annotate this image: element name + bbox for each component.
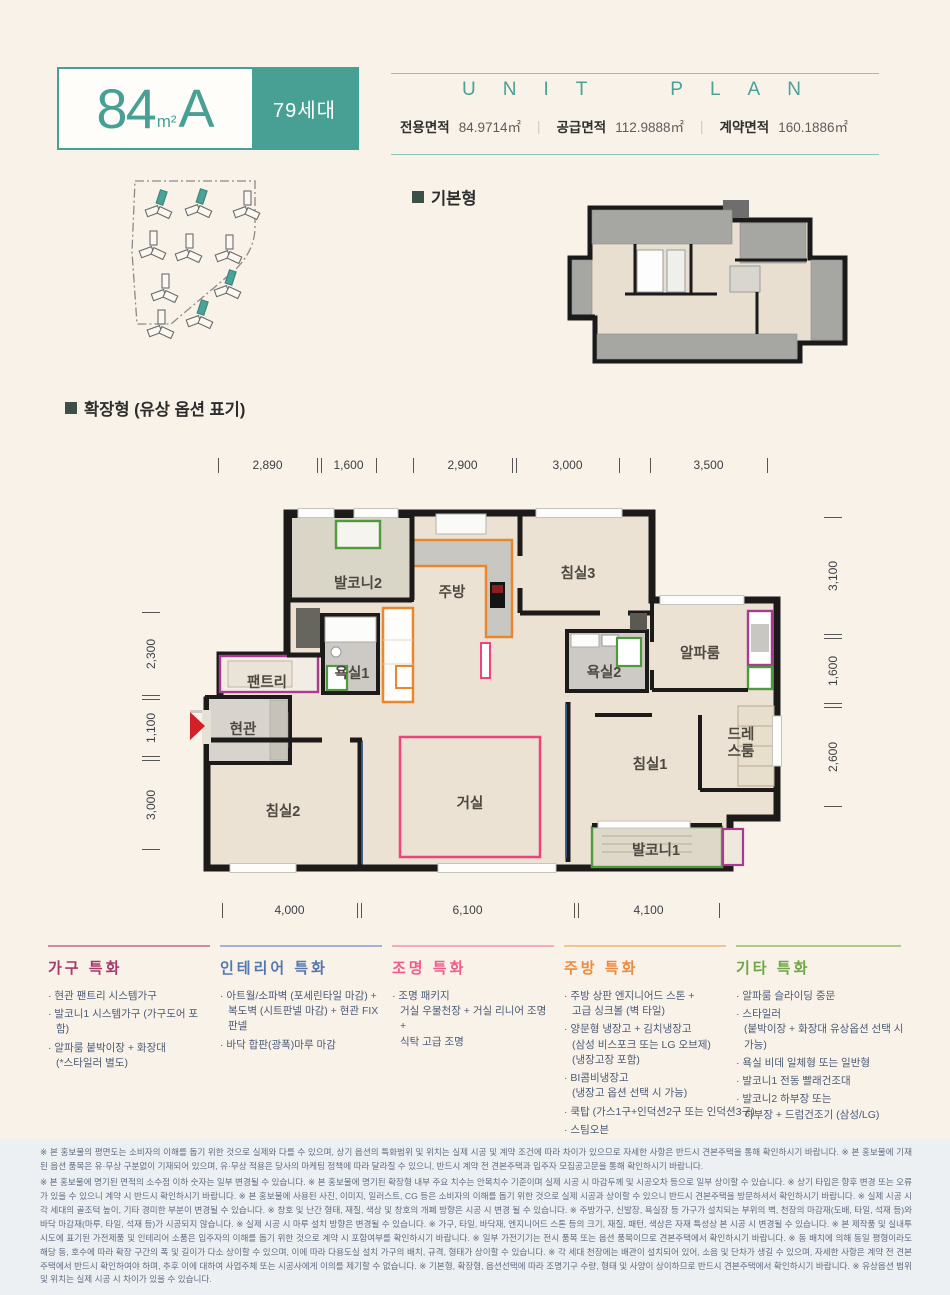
feature-title: 조명 특화 [392, 957, 554, 978]
area-info-row: 전용면적 84.9714㎡ | 공급면적 112.9888㎡ | 계약면적 16… [400, 116, 880, 136]
area-label: 공급면적 [557, 116, 607, 136]
feature-col-etc: 기타 특화 알파룸 슬라이딩 중문 스타일러 (붙박이장 + 화장대 유상옵션 … [736, 945, 916, 1126]
unit-plan-title: UNIT PLAN [391, 79, 879, 101]
bath1-sink [331, 647, 341, 657]
room-label-bed3: 침실3 [561, 565, 596, 582]
dim-label: 3,000 [516, 458, 620, 473]
area-label: 계약면적 [720, 116, 770, 136]
feature-item: 쿡탑 (가스1구+인덕션2구 또는 인덕션3구) [564, 1105, 734, 1120]
kitchen-sink [436, 514, 486, 534]
feature-item: 욕실 비데 일체형 또는 일반형 [736, 1056, 916, 1071]
section-bullet-icon [65, 402, 77, 414]
room-label-dress-2: 스룸 [728, 743, 755, 760]
area-value: 160.1886㎡ [778, 116, 848, 136]
dim-label: 2,300 [144, 638, 158, 668]
section-extended: 확장형 (유상 옵션 표기) [65, 396, 245, 420]
feature-col-kitchen: 주방 특화 주방 상판 엔지니어드 스톤 + 고급 싱크볼 (벽 타일) 양문형… [564, 945, 734, 1141]
feature-rule [392, 945, 554, 947]
room-label-balcony1: 발코니1 [632, 842, 680, 859]
dims-bottom: 4,000 6,100 4,100 [220, 903, 721, 918]
option-box-green-alpha [748, 667, 772, 689]
dims-top-group1: 2,890 1,600 [216, 458, 378, 473]
area-value: 112.9888㎡ [615, 116, 684, 136]
dim-label: 2,600 [826, 741, 840, 771]
feature-col-interior: 인테리어 특화 아트월/소파벽 (포세린타일 마감) + 복도벽 (시트판넬 마… [220, 945, 382, 1056]
dims-top-group2: 2,900 3,000 [411, 458, 621, 473]
dim-label: 1,600 [321, 458, 377, 473]
feature-rule [736, 945, 901, 947]
feature-item: 발코니1 전동 빨래건조대 [736, 1074, 916, 1089]
dim-label: 2,890 [218, 458, 318, 473]
dim-label: 1,600 [826, 655, 840, 685]
dims-right: 3,100 1,600 2,600 [824, 515, 842, 808]
disclaimer-paragraph-2: ※ 본 홍보물에 명기된 면적의 소수점 이하 숫자는 일부 변경될 수 있습니… [40, 1176, 912, 1287]
dims-top-group3: 3,500 [648, 458, 769, 473]
room-label-dress-1: 드레 [728, 726, 755, 743]
dim-label: 1,100 [144, 712, 158, 742]
dim-label: 2,900 [413, 458, 513, 473]
dim-label: 4,100 [578, 903, 720, 918]
disclaimer-paragraph-1: ※ 본 홍보물의 평면도는 소비자의 이해를 돕기 위한 것으로 실제와 다를 … [40, 1146, 912, 1174]
room-label-alpha: 알파룸 [680, 645, 720, 662]
room-label-bath1: 욕실1 [335, 665, 370, 682]
feature-item: 알파룸 붙박이장 + 화장대 (*스타일러 별도) [48, 1041, 210, 1071]
dim-label: 3,000 [144, 789, 158, 819]
room-label-living: 거실 [457, 795, 484, 812]
unit-size-unit: m² [157, 112, 177, 132]
household-count-badge: 79세대 [252, 69, 357, 148]
feature-col-furniture: 가구 특화 현관 팬트리 시스템가구 발코니1 시스템가구 (가구도어 포함) … [48, 945, 210, 1074]
feature-title: 주방 특화 [564, 957, 734, 978]
dim-label: 3,500 [650, 458, 768, 473]
feature-item: 조명 패키지 거실 우물천장 + 거실 리니어 조명 + 식탁 고급 조명 [392, 989, 554, 1050]
feature-item: 발코니2 하부장 또는 하부장 + 드럼건조기 (삼성/LG) [736, 1092, 916, 1122]
header-top-rule [391, 73, 879, 74]
bath2-counter [571, 634, 599, 647]
feature-item: 바닥 합판(광폭)마루 마감 [220, 1038, 382, 1053]
area-divider: | [700, 119, 704, 134]
feature-title: 기타 특화 [736, 957, 916, 978]
area-label: 전용면적 [400, 116, 450, 136]
room-label-pantry: 팬트리 [247, 674, 287, 691]
dims-left: 2,300 1,100 3,000 [142, 610, 160, 851]
unit-size: 84 [96, 81, 154, 137]
header-bottom-rule [391, 154, 879, 155]
section-bullet-icon [412, 191, 424, 203]
room-label-bed1: 침실1 [633, 756, 668, 773]
feature-item: 스타일러 (붙박이장 + 화장대 유상옵션 선택 시 가능) [736, 1007, 916, 1053]
feature-item: 주방 상판 엔지니어드 스톤 + 고급 싱크볼 (벽 타일) [564, 989, 734, 1019]
room-label-balcony2: 발코니2 [334, 575, 382, 592]
area-value: 84.9714㎡ [459, 116, 521, 136]
option-box-green-bath2 [617, 638, 641, 666]
feature-item: 아트월/소파벽 (포세린타일 마감) + 복도벽 (시트판넬 마감) + 현관 … [220, 989, 382, 1035]
area-divider: | [537, 119, 541, 134]
dim-label: 3,100 [826, 560, 840, 590]
room-label-bath2: 욕실2 [587, 664, 622, 681]
feature-col-lighting: 조명 특화 조명 패키지 거실 우물천장 + 거실 리니어 조명 + 식탁 고급… [392, 945, 554, 1053]
room-label-entry: 현관 [230, 721, 257, 738]
feature-title: 가구 특화 [48, 957, 210, 978]
section-basic-label: 기본형 [431, 185, 477, 209]
feature-title: 인테리어 특화 [220, 957, 382, 978]
unit-type-box: 84 m² A 79세대 [57, 67, 359, 150]
feature-item: BI콤비냉장고 (냉장고 옵션 선택 시 가능) [564, 1071, 734, 1101]
feature-rule [564, 945, 726, 947]
feature-item: 알파룸 슬라이딩 중문 [736, 989, 916, 1004]
main-floorplan-extended: 발코니2 주방 침실3 욕실1 팬트리 현관 욕실2 알파룸 드레 스룸 침실2… [190, 495, 790, 880]
room-label-bed2: 침실2 [266, 803, 301, 820]
site-plan-sketch [115, 172, 285, 352]
feature-item: 발코니1 시스템가구 (가구도어 포함) [48, 1007, 210, 1037]
bath2-sink [602, 635, 618, 646]
dim-label: 4,000 [222, 903, 358, 918]
section-basic: 기본형 [412, 185, 477, 209]
feature-item: 스팀오븐 [564, 1123, 734, 1138]
feature-rule [220, 945, 382, 947]
mini-floorplan-basic [495, 198, 880, 373]
room-label-kitchen: 주방 [439, 583, 466, 601]
option-box-purple-balcony1 [723, 829, 743, 865]
dim-label: 6,100 [361, 903, 575, 918]
unit-type-label: 84 m² A [59, 69, 252, 148]
feature-item: 양문형 냉장고 + 김치냉장고 (삼성 비스포크 또는 LG 오브제) (냉장고… [564, 1022, 734, 1068]
section-extended-label: 확장형 (유상 옵션 표기) [84, 396, 245, 420]
entry-shoe-cabinet [270, 700, 288, 760]
unit-type-letter: A [179, 82, 215, 136]
option-box-green-balcony2 [336, 521, 380, 548]
option-marker-hall [481, 643, 490, 678]
feature-rule [48, 945, 210, 947]
feature-item: 현관 팬트리 시스템가구 [48, 989, 210, 1004]
bath1-tub [325, 617, 376, 642]
